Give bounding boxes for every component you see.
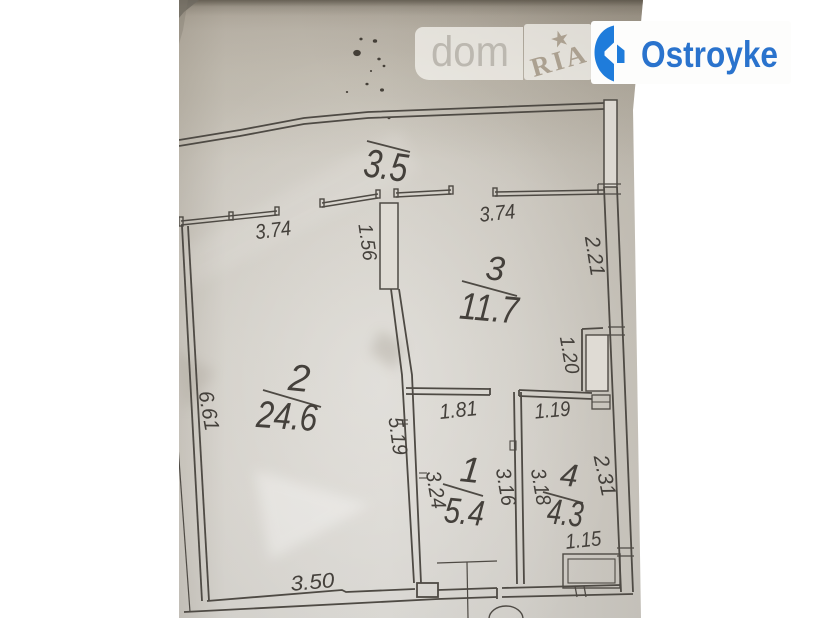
svg-text:Ostroyke: Ostroyke bbox=[641, 34, 778, 75]
svg-text:3.74: 3.74 bbox=[478, 200, 516, 227]
svg-text:24.6: 24.6 bbox=[254, 394, 319, 440]
svg-text:1.15: 1.15 bbox=[564, 527, 602, 554]
svg-text:3.74: 3.74 bbox=[254, 217, 293, 244]
svg-text:3: 3 bbox=[484, 249, 507, 289]
svg-text:11.7: 11.7 bbox=[458, 286, 522, 333]
svg-text:1.81: 1.81 bbox=[438, 397, 478, 424]
svg-text:1.19: 1.19 bbox=[533, 397, 571, 423]
svg-text:3.5: 3.5 bbox=[361, 141, 411, 191]
svg-text:1: 1 bbox=[458, 448, 482, 491]
svg-text:2: 2 bbox=[286, 357, 312, 401]
svg-text:dom: dom bbox=[431, 28, 509, 76]
svg-text:4: 4 bbox=[558, 456, 579, 494]
svg-text:5.4: 5.4 bbox=[442, 489, 486, 534]
svg-text:4.3: 4.3 bbox=[545, 490, 585, 535]
svg-text:3.50: 3.50 bbox=[290, 569, 336, 596]
